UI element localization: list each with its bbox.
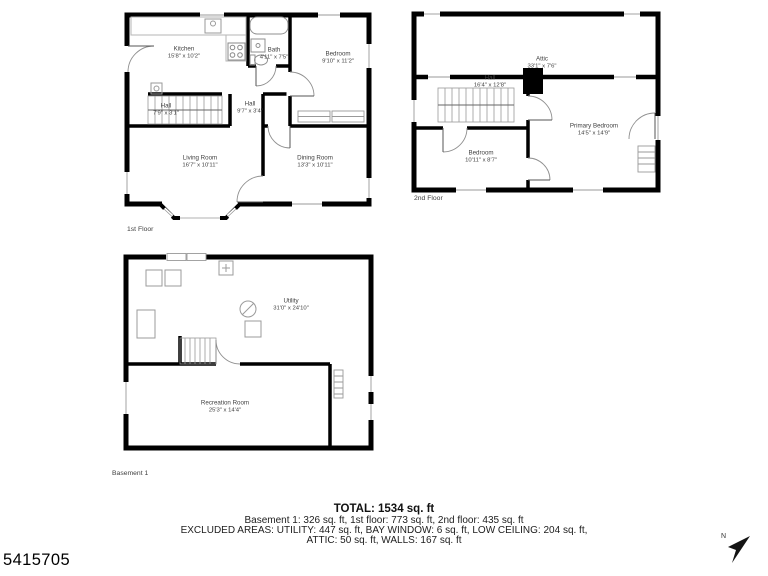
north-label: N (721, 533, 726, 540)
floor-caption-2nd: 2nd Floor (414, 195, 443, 202)
bulkhead-doors (166, 253, 206, 261)
room-label-hall-center: Hall 9'7" x 3'4" (237, 101, 263, 116)
room-label-hall-west: Hall 7'9" x 3'1" (153, 103, 179, 118)
chimney (523, 68, 543, 94)
north-arrow-icon: N (710, 522, 756, 570)
room-label-bath: Bath 4'11" x 7'5" (260, 47, 289, 62)
outer-walls (414, 14, 658, 190)
room-label-recreation-room: Recreation Room 25'3" x 14'4" (201, 400, 249, 415)
summary-total: TOTAL: 1534 sq. ft (0, 503, 768, 516)
floor-caption-1st: 1st Floor (127, 226, 153, 233)
room-label-primary-bedroom: Primary Bedroom 14'5" x 14'9" (570, 123, 618, 138)
summary-excluded-2: ATTIC: 50 sq. ft, WALLS: 167 sq. ft (0, 536, 768, 546)
room-label-hall-2f: Hall 16'4" x 12'8" (474, 75, 506, 90)
floor-caption-basement: Basement 1 (112, 470, 148, 477)
second-floor-plan (410, 8, 662, 200)
room-label-kitchen: Kitchen 15'8" x 10'2" (168, 46, 200, 61)
first-floor-plan (122, 8, 374, 240)
room-label-dining-room: Dining Room 13'3" x 10'11" (297, 155, 333, 170)
bay-window (160, 200, 240, 218)
outer-walls (126, 257, 371, 448)
room-label-attic: Attic 33'1" x 7'6" (527, 56, 556, 71)
area-summary: TOTAL: 1534 sq. ft Basement 1: 326 sq. f… (0, 503, 768, 547)
room-label-living-room: Living Room 16'7" x 10'11" (182, 155, 217, 170)
room-label-bedroom-1f: Bedroom 9'10" x 11'2" (322, 51, 354, 66)
north-arrow (728, 536, 750, 563)
listing-id: 5415705 (3, 551, 70, 570)
basement-plan (122, 252, 375, 454)
room-label-bedroom-2f: Bedroom 10'11" x 8'7" (465, 150, 497, 165)
room-label-utility: Utility 31'0" x 24'10" (273, 298, 309, 313)
